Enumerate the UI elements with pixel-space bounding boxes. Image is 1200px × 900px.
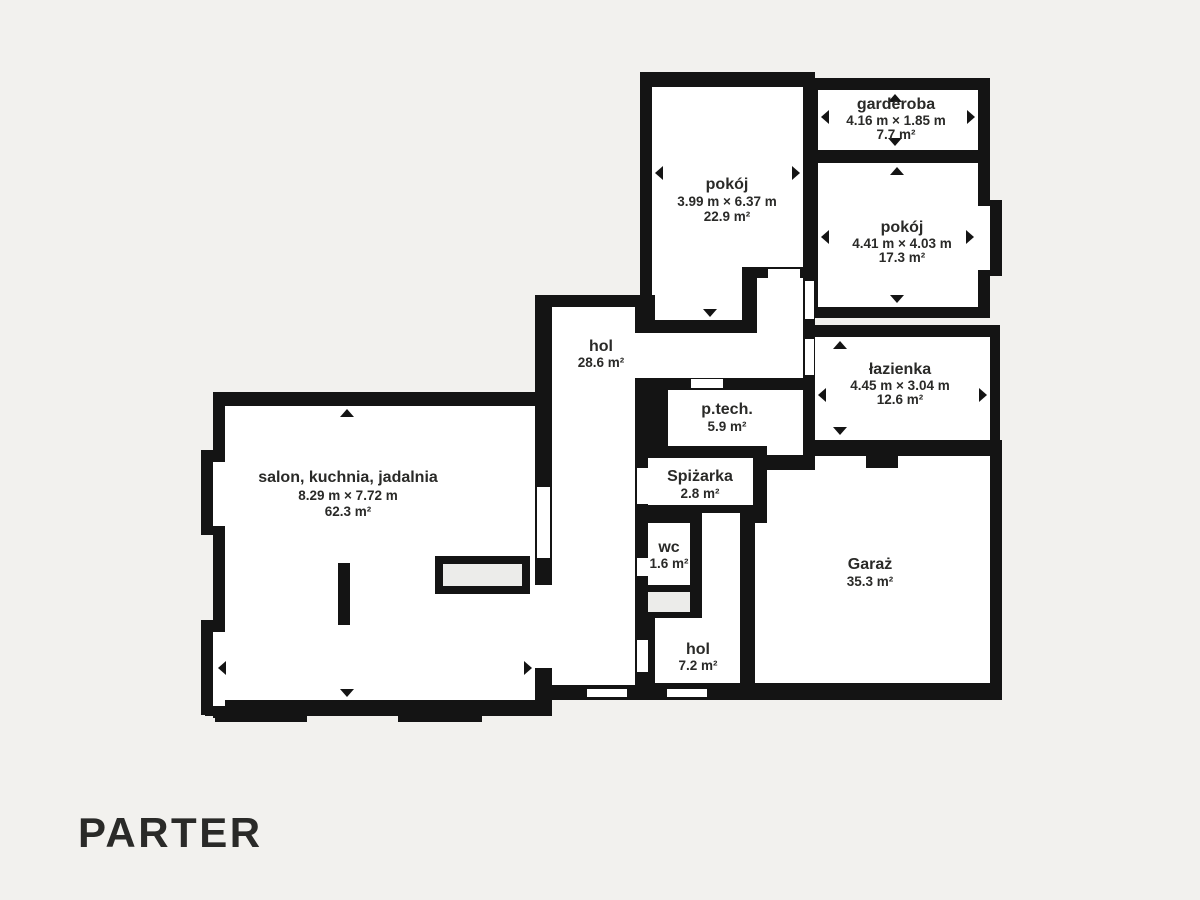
label-wardrobe-dims: 4.16 m × 1.85 m xyxy=(846,113,945,128)
label-garage-name: Garaż xyxy=(848,556,892,573)
kitchen-island-fill xyxy=(443,564,522,586)
wall-living-left-bump-1 xyxy=(201,450,215,535)
label-bedroom-b-name: pokój xyxy=(881,219,924,236)
label-technical-area: 5.9 m² xyxy=(707,419,747,434)
label-wc-name: wc xyxy=(657,539,679,556)
partition-stub-wall xyxy=(338,563,350,625)
label-living-area: 62.3 m² xyxy=(325,504,372,519)
label-living-dims: 8.29 m × 7.72 m xyxy=(298,488,397,503)
label-bedroom-b-area: 17.3 m² xyxy=(879,250,926,265)
floor-title: PARTER xyxy=(78,809,263,856)
label-bathroom-area: 12.6 m² xyxy=(877,392,924,407)
label-pantry-area: 2.8 m² xyxy=(680,486,720,501)
label-hall-small-name: hol xyxy=(686,641,710,658)
wall-bathroom-notch xyxy=(866,454,898,468)
wall-living-top xyxy=(213,392,552,406)
label-bedroom-a-dims: 3.99 m × 6.37 m xyxy=(677,194,776,209)
label-technical-name: p.tech. xyxy=(701,401,753,418)
label-hall-main-name: hol xyxy=(589,338,613,355)
floor-living xyxy=(225,406,535,700)
label-bedroom-b-dims: 4.41 m × 4.03 m xyxy=(852,236,951,251)
room-living xyxy=(201,392,552,722)
label-hall-main-area: 28.6 m² xyxy=(578,355,625,370)
floor-hall-alcove xyxy=(757,278,803,378)
door-bedroom-a xyxy=(768,269,800,278)
label-wardrobe-area: 7.7 m² xyxy=(876,127,916,142)
label-garage-area: 35.3 m² xyxy=(847,574,894,589)
floorplan-drawing: pokój 3.99 m × 6.37 m 22.9 m² garderoba … xyxy=(0,0,1200,900)
window-living-hall xyxy=(537,487,550,558)
label-hall-small-area: 7.2 m² xyxy=(678,658,718,673)
label-living-name: salon, kuchnia, jadalnia xyxy=(258,469,438,486)
wall-living-bottom-step-1 xyxy=(215,712,307,722)
floor-bedroom-b-bay xyxy=(974,206,990,270)
label-bathroom-dims: 4.45 m × 3.04 m xyxy=(850,378,949,393)
door-living-hall xyxy=(535,585,552,668)
door-wc xyxy=(637,558,648,576)
floor-living-bump-1 xyxy=(213,462,225,526)
wc-niche xyxy=(648,592,690,612)
label-bedroom-a-area: 22.9 m² xyxy=(704,209,751,224)
door-bathroom xyxy=(805,339,814,375)
label-bathroom-name: łazienka xyxy=(869,361,931,378)
door-pantry xyxy=(637,468,648,504)
label-wardrobe-name: garderoba xyxy=(857,96,935,113)
label-bedroom-a-name: pokój xyxy=(706,176,749,193)
label-pantry-name: Spiżarka xyxy=(667,468,733,485)
floor-bedroom-a-lobe xyxy=(652,267,742,320)
label-wc-area: 1.6 m² xyxy=(649,556,689,571)
door-hall-small xyxy=(637,640,648,672)
wall-living-bottom-step-2 xyxy=(398,712,482,722)
window-hall-main xyxy=(587,689,627,697)
door-technical xyxy=(691,379,723,388)
floorplan-page: pokój 3.99 m × 6.37 m 22.9 m² garderoba … xyxy=(0,0,1200,900)
door-bedroom-b xyxy=(805,281,814,319)
window-hall-small xyxy=(667,689,707,697)
